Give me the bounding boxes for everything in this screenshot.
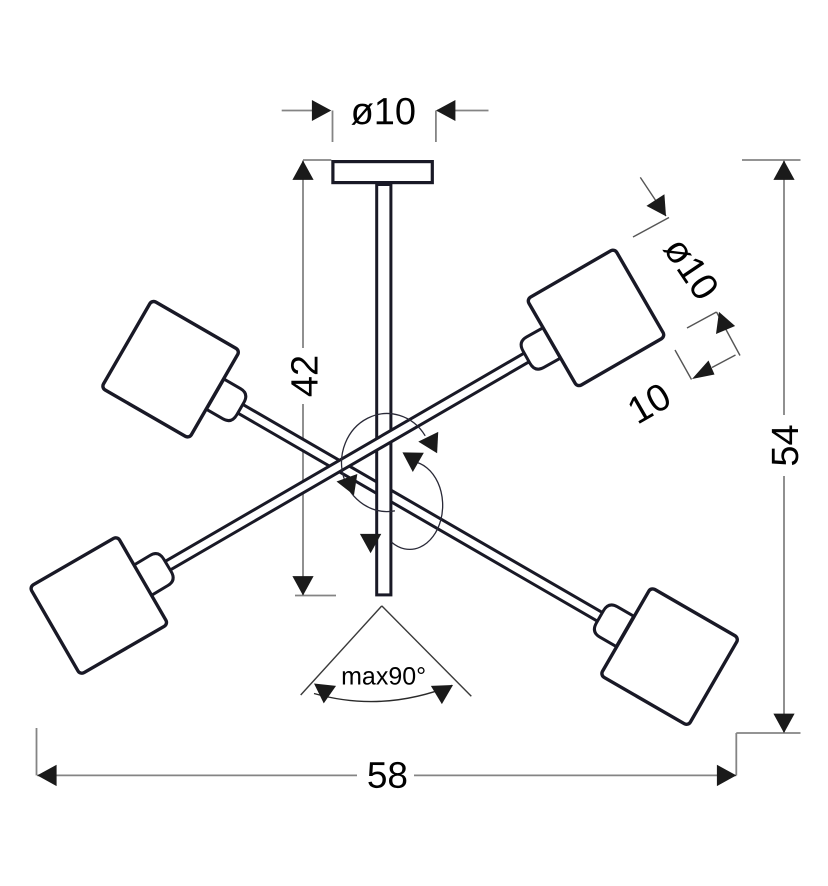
- svg-text:54: 54: [765, 424, 807, 466]
- svg-text:42: 42: [285, 355, 327, 397]
- svg-text:max90°: max90°: [341, 662, 426, 690]
- svg-text:58: 58: [367, 755, 408, 796]
- svg-text:ø10: ø10: [351, 91, 417, 133]
